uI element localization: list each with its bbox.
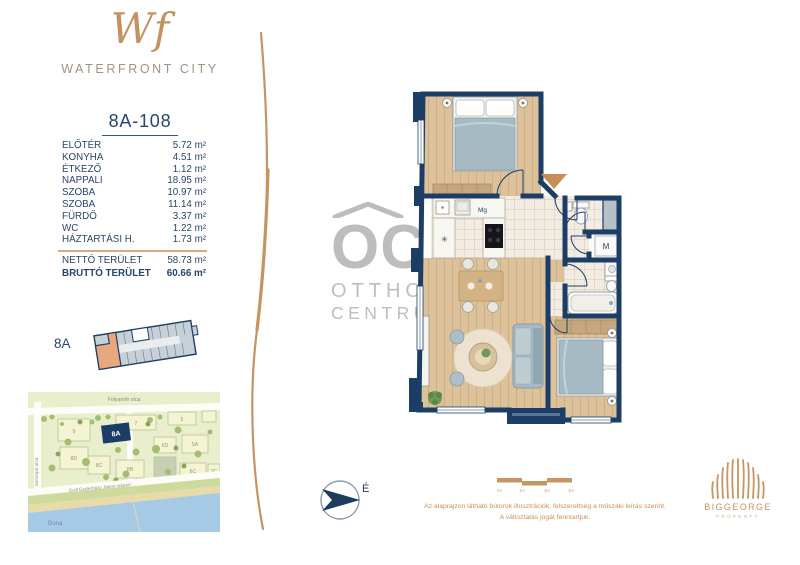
room-area: 3.37 m² <box>173 211 206 223</box>
building-key: 8A <box>54 336 71 351</box>
map-block-label: 8C <box>96 463 103 469</box>
room-label: ELŐTÉR <box>62 140 101 152</box>
apartment-floorplan: Mg ✳ M <box>405 90 670 425</box>
room-area: 4.51 m² <box>173 152 206 164</box>
room-label: KONYHA <box>62 152 103 164</box>
scale-bar: 0m 1m 2m 3m <box>497 476 577 496</box>
table-row: NAPPALI18.95 m² <box>62 175 206 187</box>
room-label: SZOBA <box>62 199 95 211</box>
table-row: FÜRDŐ3.37 m² <box>62 211 206 223</box>
table-row: SZOBA10.97 m² <box>62 187 206 199</box>
cooktop <box>485 224 503 248</box>
totals: NETTÓ TERÜLET58.73 m² BRUTTÓ TERÜLET60.6… <box>62 255 206 280</box>
north-label: É <box>362 482 369 495</box>
unit-id: 8A-108 <box>55 111 225 136</box>
room-area-table: ELŐTÉR5.72 m² KONYHA4.51 m² ÉTKEZŐ1.12 m… <box>62 140 206 246</box>
logo-monogram-icon: Wf <box>111 4 170 53</box>
room-area: 18.95 m² <box>167 175 206 187</box>
pouf <box>450 372 464 386</box>
street-left-label: Sorompó utca <box>34 457 39 486</box>
gross-area-row: BRUTTÓ TERÜLET60.66 m² <box>62 268 206 281</box>
developer-logo: BIGGEORGE PROPERTY <box>694 458 782 519</box>
disclaimer: Az alaprajzon látható bútorok illusztrác… <box>385 502 705 523</box>
map-highlight-8a: 8A <box>101 422 131 443</box>
table-row: SZOBA11.14 m² <box>62 199 206 211</box>
table-row: HÁZTARTÁSI H.1.73 m² <box>62 234 206 246</box>
bed <box>557 338 619 396</box>
bathtub <box>568 292 618 314</box>
room-label: WC <box>62 223 78 235</box>
decorative-curve-icon <box>243 30 277 532</box>
washer-label: M <box>603 242 610 251</box>
brand-logo: Wf <box>40 6 240 52</box>
crown-icon <box>706 458 770 500</box>
developer-division: PROPERTY <box>694 514 782 519</box>
table-divider <box>58 250 207 252</box>
bath-toilet <box>605 276 618 292</box>
scale-tick: 2m <box>544 488 550 493</box>
compass-icon: É <box>316 474 374 528</box>
dishwasher-label: Mg <box>478 207 487 214</box>
room-area: 1.22 m² <box>173 223 206 235</box>
room-area: 10.97 m² <box>167 187 206 199</box>
pouf <box>450 330 464 344</box>
room-area: 1.73 m² <box>173 234 206 246</box>
location-map: 9 7 5 6D 5A 8D 8C 8B 6C 3C 8A <box>28 392 220 532</box>
room-area: 11.14 m² <box>168 199 206 211</box>
net-area-row: NETTÓ TERÜLET58.73 m² <box>62 255 206 268</box>
table-row: KONYHA4.51 m² <box>62 152 206 164</box>
disclaimer-line1: Az alaprajzon látható bútorok illusztrác… <box>385 502 705 513</box>
sofa <box>513 324 543 388</box>
map-block-label: 6D <box>162 443 169 449</box>
map-block-label: 8D <box>71 456 78 462</box>
room-area: 1.12 m² <box>173 164 206 176</box>
svg-text:8A: 8A <box>111 430 121 438</box>
coffee-table <box>469 343 497 371</box>
fridge-symbol: ✳ <box>441 235 448 244</box>
room-label: HÁZTARTÁSI H. <box>62 234 135 246</box>
room-label: NAPPALI <box>62 175 103 187</box>
developer-name: BIGGEORGE <box>694 502 782 512</box>
table-row: WC1.22 m² <box>62 223 206 235</box>
scale-tick: 0m <box>497 488 502 493</box>
map-block-label: 5 <box>181 417 184 423</box>
river-label: Duna <box>48 521 63 527</box>
street-top-label: Folyamőr utca <box>108 397 141 403</box>
bed <box>453 97 517 171</box>
plant <box>428 391 442 405</box>
room-label: SZOBA <box>62 187 95 199</box>
room-label: ÉTKEZŐ <box>62 164 101 176</box>
building-overview-plan <box>86 312 204 378</box>
room-area: 5.72 m² <box>173 140 206 152</box>
disclaimer-line2: A változtatás jogát fenntartjuk. <box>385 513 705 524</box>
table-row: ELŐTÉR5.72 m² <box>62 140 206 152</box>
map-block-label: 7 <box>135 421 138 427</box>
scale-tick: 3m <box>568 488 574 493</box>
map-block-label: 9 <box>73 429 76 435</box>
table-row: ÉTKEZŐ1.12 m² <box>62 164 206 176</box>
scale-tick: 1m <box>519 488 525 493</box>
brand-name: WATERFRONT CITY <box>40 62 240 76</box>
room-label: FÜRDŐ <box>62 211 97 223</box>
map-block-label: 5A <box>192 442 199 448</box>
floorplan-sheet: Wf WATERFRONT CITY 8A-108 ELŐTÉR5.72 m² … <box>0 0 800 565</box>
